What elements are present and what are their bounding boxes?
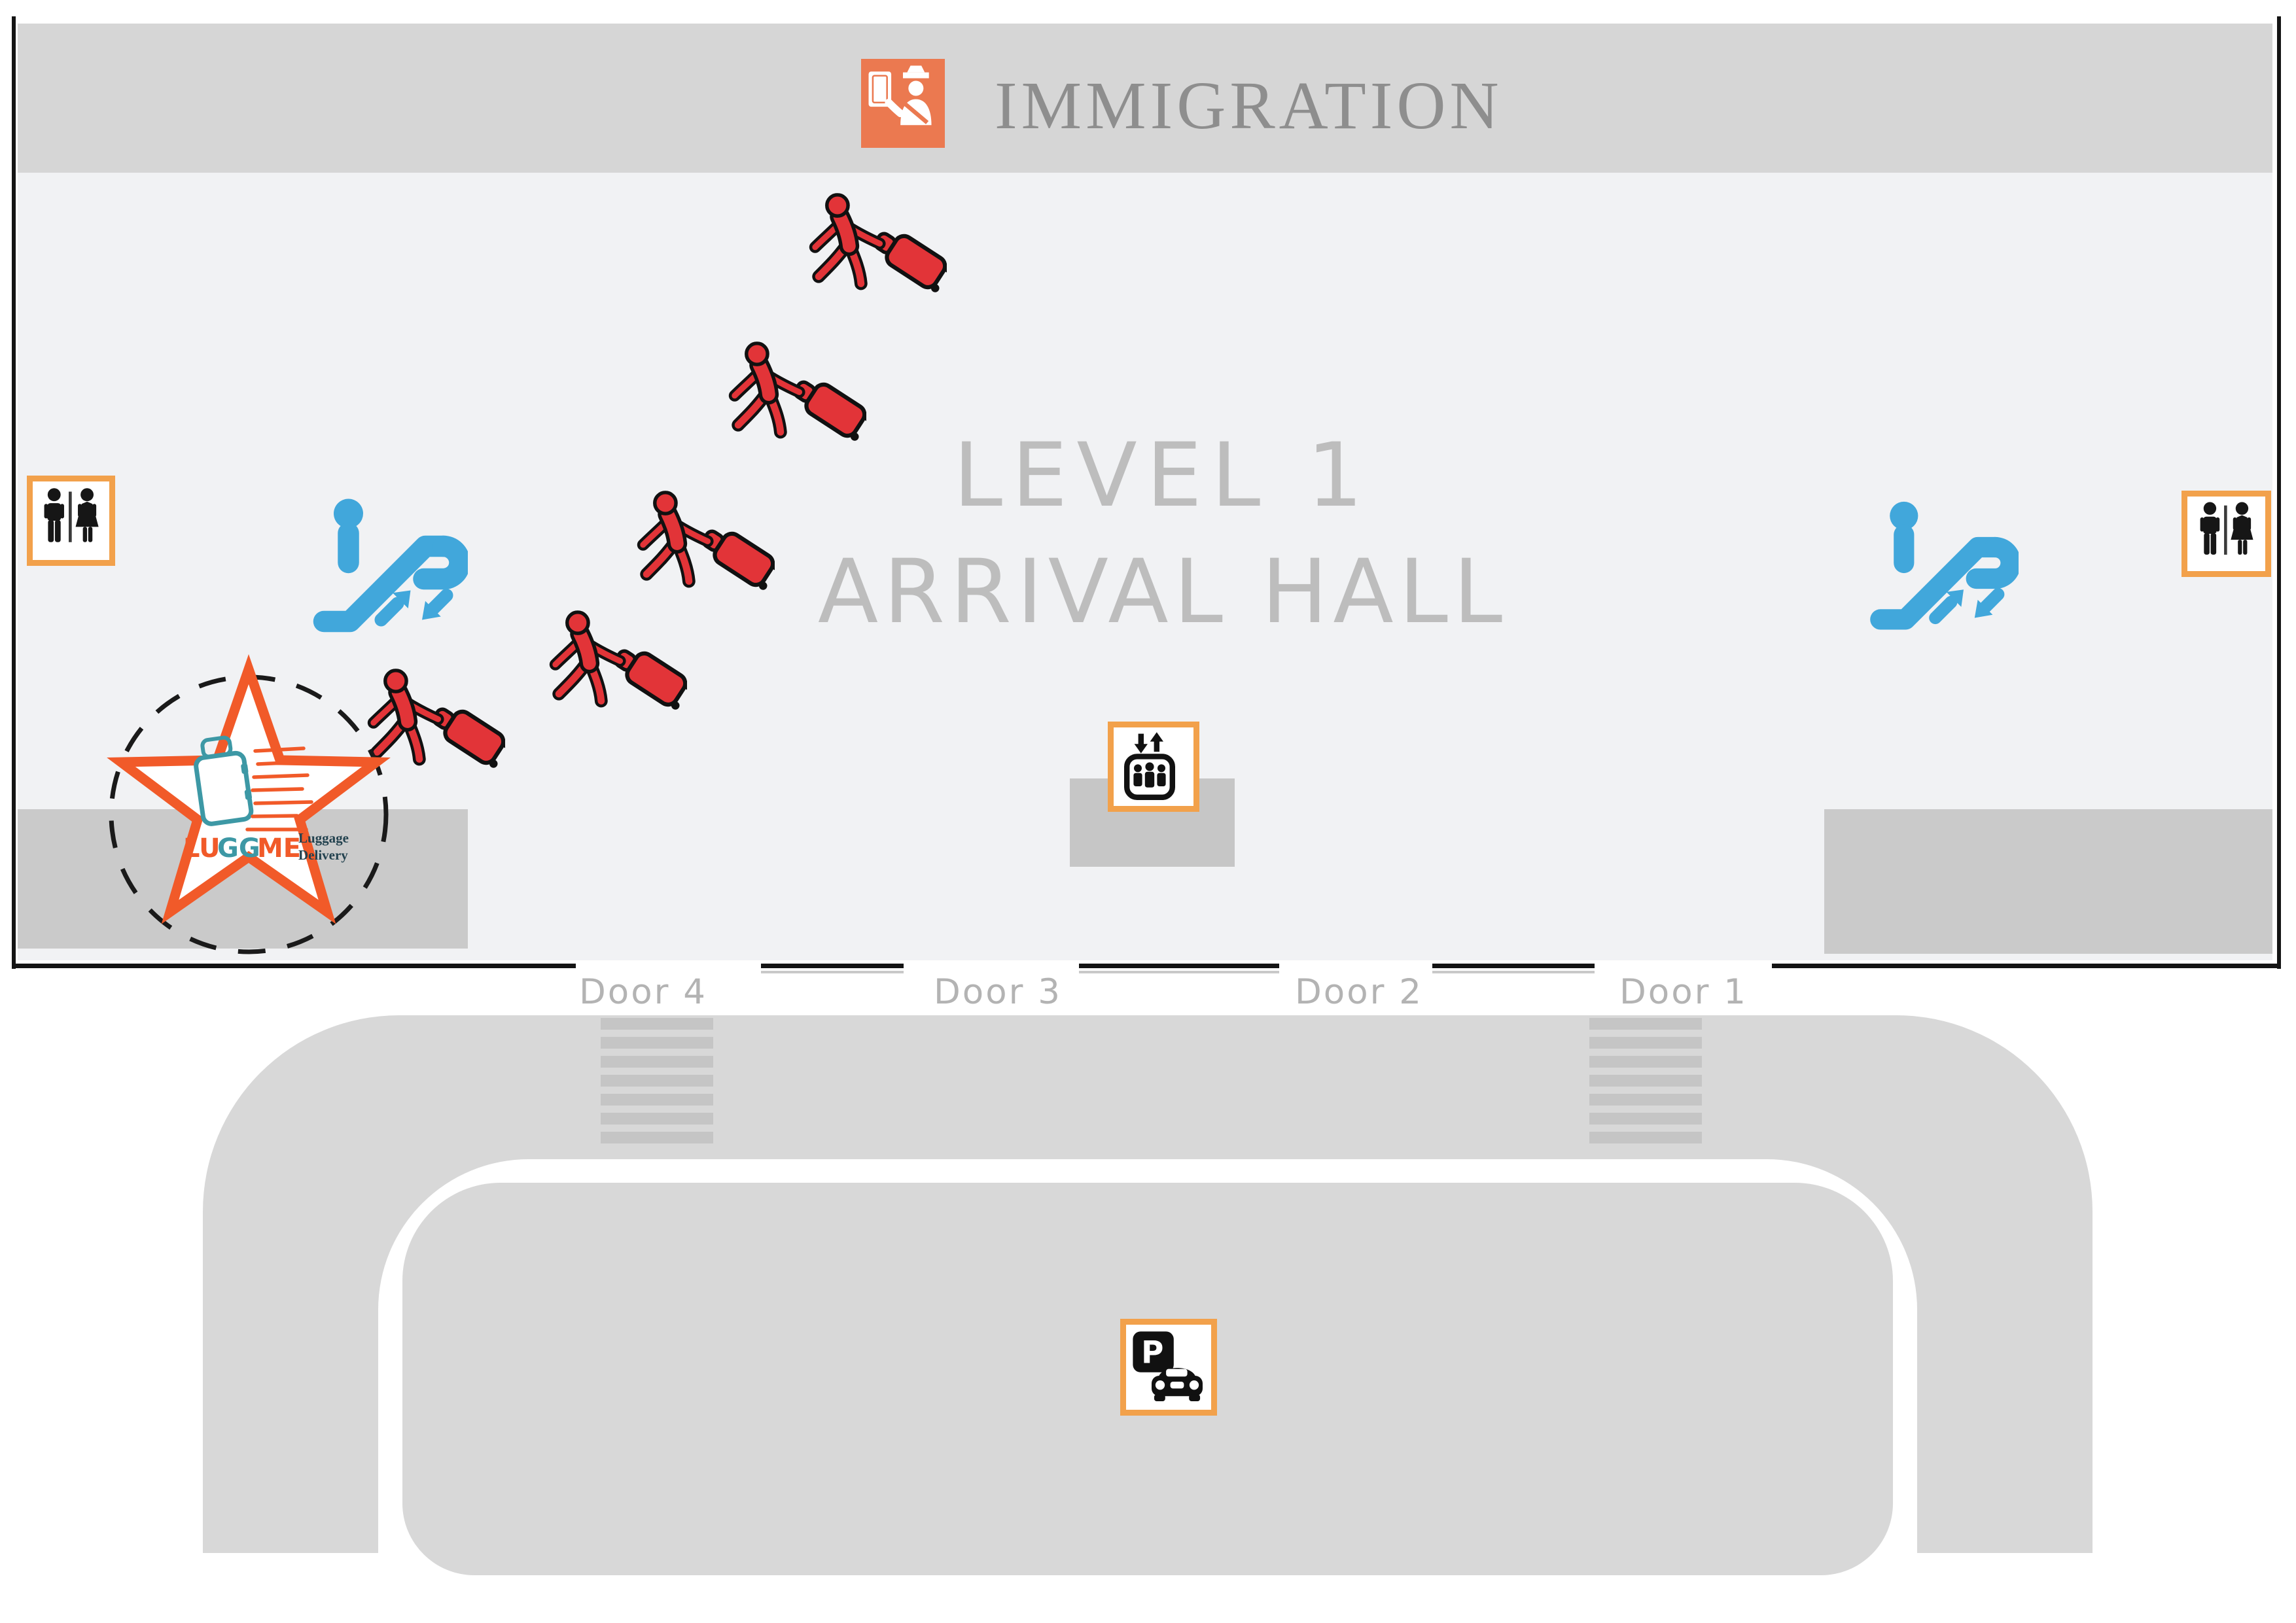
- restroom-icon: [33, 481, 109, 560]
- door-label-1: Door 1: [1585, 972, 1782, 1013]
- parking-pickup-sign: [1120, 1319, 1217, 1416]
- passenger-with-luggage-icon: [548, 610, 687, 728]
- passenger-with-luggage-icon: [808, 193, 947, 311]
- passenger-with-luggage-icon: [728, 341, 866, 459]
- hall-wall-left: [12, 16, 16, 969]
- escalator-icon-left: [304, 481, 468, 644]
- restroom-sign-left: [27, 476, 115, 566]
- passenger-with-luggage-icon: [636, 491, 775, 608]
- structure-block-right: [1824, 809, 2272, 954]
- wall-segment: [14, 964, 576, 968]
- logo-word-me: ME: [257, 833, 301, 864]
- door-label-4: Door 4: [545, 972, 741, 1013]
- wall-segment-door: [761, 964, 904, 968]
- logo-word-lu: LU: [183, 833, 221, 864]
- parking-car-icon: [1126, 1325, 1211, 1410]
- door-label-2: Door 2: [1261, 972, 1457, 1013]
- door-label-3: Door 3: [900, 972, 1096, 1013]
- wall-segment-shadow: [761, 971, 904, 973]
- logo-word-gg: GG: [217, 833, 260, 864]
- wall-segment-door: [1079, 964, 1279, 968]
- wall-segment: [1772, 964, 2281, 968]
- immigration-officer-icon: [861, 59, 945, 148]
- restroom-sign-right: [2181, 491, 2271, 577]
- hall-wall-right: [2277, 16, 2281, 969]
- logo-tagline-2: Delivery: [298, 847, 348, 863]
- immigration-label: IMMIGRATION: [995, 60, 1780, 152]
- escalator-icon-right: [1862, 480, 2019, 646]
- elevator-sign: [1108, 722, 1199, 812]
- wall-segment-door: [1432, 964, 1595, 968]
- wall-segment-shadow: [1079, 971, 1279, 973]
- luggme-logo: LU GG ME Luggage Delivery: [97, 653, 404, 960]
- hall-title-line2: ARRIVAL HALL: [705, 540, 1621, 643]
- elevator-icon: [1114, 727, 1193, 806]
- terminal-map: P IMMI: [0, 0, 2296, 1623]
- restroom-icon: [2187, 497, 2265, 571]
- logo-tagline-1: Luggage: [298, 830, 349, 846]
